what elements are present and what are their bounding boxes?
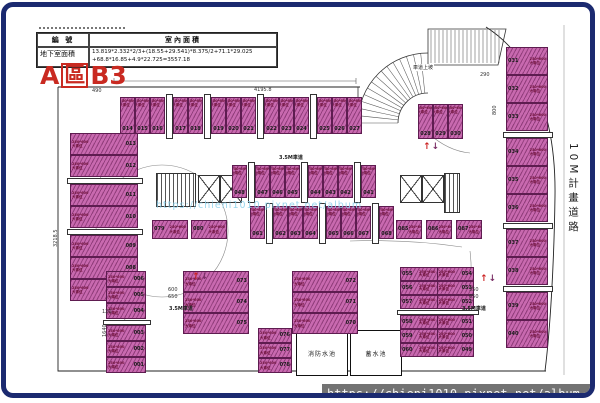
parking-stall: 037250*600大車位 (506, 229, 548, 257)
parking-stall: 250*600大車位026 (332, 97, 347, 134)
stall-size-note: 250*600大車位 (173, 99, 188, 107)
stall-number: 022 (266, 127, 276, 132)
dimension-label: 3218.5 (54, 230, 59, 248)
stall-number: 011 (126, 193, 136, 198)
stall-number: 049 (462, 348, 472, 353)
up-arrow-icon: ↑ (480, 275, 488, 284)
stall-number: 017 (175, 127, 185, 132)
stall-number: 031 (508, 59, 518, 64)
parking-stall: 033250*600大車位 (506, 103, 548, 131)
parking-stall: 059250*600大車位 (401, 330, 438, 342)
dimension-label: 800 (493, 105, 498, 115)
stall-size-note: 250*600大車位 (226, 99, 241, 107)
stall-size-note: 250*600大車位 (530, 267, 546, 275)
stall-number: 013 (126, 142, 136, 147)
stall-number: 018 (190, 127, 200, 132)
stall-size-note: 250*600大車位 (294, 277, 310, 285)
parking-stall: 058250*600大車位 (401, 316, 438, 328)
stall-size-note: 250*600大車位 (285, 167, 300, 175)
parking-stall: 250*600大車位025 (317, 97, 332, 134)
stall-size-note: 250*600大車位 (108, 361, 124, 369)
stall-size-note: 250*600大車位 (108, 291, 124, 299)
stall-size-note: 250*600大車位 (439, 271, 455, 278)
parking-stall: 250*600大車位022 (264, 97, 279, 134)
parking-stall: 250*600大車位028 (418, 104, 433, 139)
structural-column (354, 162, 361, 203)
stall-number: 063 (290, 232, 300, 237)
parking-stall: 250*600大車位017 (173, 97, 188, 134)
parking-stall: 250*600大車位047 (255, 165, 270, 198)
parking-stall: 086250*600大車位 (426, 220, 452, 239)
parking-stall: 250*600大車位045 (285, 165, 300, 198)
dimension-label: 550 (469, 288, 479, 293)
stall-size-note: 250*600大車位 (408, 225, 422, 233)
parking-stall: 250*600大車位015 (135, 97, 150, 134)
structural-column (67, 229, 143, 235)
parking-stall: 250*600大車位029 (433, 104, 448, 139)
stall-size-note: 250*600大車位 (135, 99, 150, 107)
parking-stall-pair: 060250*600大車位250*600大車位049 (400, 343, 474, 357)
stall-size-note: 250*600大車位 (439, 299, 455, 306)
parking-stall: 250*600大車位001 (106, 357, 146, 373)
stall-number: 004 (134, 309, 144, 314)
stall-number: 050 (462, 334, 472, 339)
stall-number: 026 (334, 127, 344, 132)
parking-stall: 250*600大車位005 (106, 287, 146, 303)
stall-number: 060 (402, 348, 412, 353)
stall-number: 076 (280, 333, 290, 338)
stall-size-note: 250*600大車位 (108, 345, 124, 353)
zone-title-boxed: 區 (61, 63, 88, 88)
stall-size-note: 250*600大車位 (170, 225, 186, 233)
structural-column (503, 223, 553, 229)
stall-size-note: 250*600大車位 (439, 319, 455, 326)
stall-number: 040 (508, 332, 518, 337)
parking-stall: 250*600大車位050 (438, 330, 474, 342)
dimension-label: 650 (469, 295, 479, 300)
stall-number: 043 (325, 191, 335, 196)
stair-core (444, 173, 460, 213)
structural-column (503, 286, 553, 292)
lane-arrows: ↑ ↓ (192, 273, 208, 282)
stall-size-note: 250*600大車位 (530, 148, 546, 156)
dimension-label: 650 (168, 295, 178, 300)
lane-arrows: ↑ ↓ (423, 143, 439, 152)
stall-size-note: 250*600大車位 (264, 99, 279, 107)
stall-number: 077 (280, 348, 290, 353)
stall-size-note: 250*600大車位 (108, 275, 124, 283)
stall-number: 056 (402, 286, 412, 291)
parking-stall: 085250*600大車位 (396, 220, 422, 239)
stall-size-note: 250*600大車位 (211, 99, 226, 107)
stall-number: 059 (402, 334, 412, 339)
stall-number: 062 (275, 232, 285, 237)
stall-number: 005 (134, 293, 144, 298)
stall-number: 054 (462, 272, 472, 277)
stall-number: 067 (358, 232, 368, 237)
dimension-label: 1640 (103, 324, 108, 337)
stall-number: 046 (272, 191, 282, 196)
floor-plan: 編 號 室內面積 地下室面積 13.819*2.332*2/3+(18.55+2… (6, 7, 590, 393)
stall-size-note: 250*600大車位 (530, 239, 546, 247)
stall-size-note: 250*600大車位 (419, 271, 435, 278)
parking-stall: 055250*600大車位 (401, 268, 438, 280)
stall-number: 019 (213, 127, 223, 132)
structural-column (257, 94, 264, 139)
elevator-shaft (400, 175, 422, 203)
watermark-text: https://chieni1010.pixnet.net/album (156, 200, 362, 211)
stall-size-note: 250*600大車位 (530, 176, 546, 184)
stall-number: 023 (281, 127, 291, 132)
stall-size-note: 250*600大車位 (439, 285, 455, 292)
stall-number: 048 (234, 191, 244, 196)
parking-stall: 250*600大車位014 (120, 97, 135, 134)
parking-stall: 250*600大車位049 (438, 344, 474, 356)
parking-stall: 250*600大車位076 (258, 328, 292, 343)
parking-stall: 250*600大車位043 (323, 165, 338, 198)
stall-size-note: 250*600大車位 (72, 162, 88, 170)
stall-number: 006 (134, 277, 144, 282)
stall-number: 003 (134, 331, 144, 336)
structural-column (397, 310, 479, 315)
stall-number: 086 (428, 227, 438, 232)
stall-number: 034 (508, 150, 518, 155)
machine-room-1: 消防水池 (296, 330, 348, 376)
parking-stall: 056250*600大車位 (401, 282, 438, 294)
table-header-area: 室內面積 (89, 33, 277, 47)
parking-stall: 079250*600大車位 (152, 220, 188, 239)
parking-stall: 060250*600大車位 (401, 344, 438, 356)
parking-stall: 250*600大車位023 (279, 97, 294, 134)
stall-number: 008 (126, 266, 136, 271)
stall-size-note: 250*600大車位 (347, 99, 362, 107)
stall-size-note: 250*600大車位 (72, 140, 88, 148)
stall-size-note: 250*600大車位 (188, 99, 203, 107)
stall-size-note: 250*600大車位 (419, 333, 435, 340)
parking-stall: 250*600大車位071 (292, 292, 358, 313)
stall-size-note: 250*600大車位 (438, 225, 452, 233)
stall-size-note: 250*600大車位 (120, 99, 135, 107)
stall-size-note: 250*600大車位 (418, 106, 433, 114)
stall-number: 042 (340, 191, 350, 196)
parking-stall: 031250*600大車位 (506, 47, 548, 75)
parking-stall: 034250*600大車位 (506, 138, 548, 166)
stall-number: 020 (228, 127, 238, 132)
stall-size-note: 250*600大車位 (260, 331, 276, 339)
parking-stall: 250*600大車位077 (258, 343, 292, 358)
zone-title-a: A (40, 63, 59, 88)
stall-number: 073 (237, 279, 247, 284)
parking-stall: 250*600大車位068 (379, 206, 394, 239)
stall-number: 030 (450, 132, 460, 137)
parking-stall-pair: 056250*600大車位250*600大車位053 (400, 281, 474, 295)
stall-size-note: 250*600大車位 (72, 213, 88, 221)
stall-size-note: 250*600大車位 (468, 225, 482, 233)
parking-stall-pair: 055250*600大車位250*600大車位054 (400, 267, 474, 281)
stall-number: 027 (349, 127, 359, 132)
parking-stall: 250*600大車位075 (183, 313, 249, 334)
stall-number: 057 (402, 300, 412, 305)
dimension-label: 120 (102, 310, 112, 315)
parking-stall: 250*600大車位027 (347, 97, 362, 134)
aisle-label: 3.5M車道 (169, 305, 193, 312)
stall-number: 079 (154, 227, 164, 232)
machine-room-1-label: 消防水池 (308, 349, 336, 358)
stall-size-note: 250*600大車位 (260, 346, 276, 354)
structural-column (503, 132, 553, 138)
parking-stall: 250*600大車位051 (438, 316, 474, 328)
dimension-label: 600 (168, 288, 178, 293)
parking-stall: 250*600大車位048 (232, 165, 247, 198)
stall-number: 039 (508, 304, 518, 309)
table-header-id: 編 號 (37, 33, 89, 47)
stall-size-note: 250*600大車位 (294, 319, 310, 327)
stall-number: 064 (305, 232, 315, 237)
parking-stall: 250*600大車位004 (106, 303, 146, 319)
structural-column (310, 94, 317, 139)
down-arrow-icon: ↓ (432, 143, 440, 152)
stall-size-note: 250*600大車位 (241, 99, 256, 107)
stall-size-note: 250*600大車位 (439, 347, 455, 354)
screenshot: 編 號 室內面積 地下室面積 13.819*2.332*2/3+(18.55+2… (0, 0, 600, 403)
parking-stall: 039250*600大車位 (506, 292, 548, 320)
parking-stall: 032250*600大車位 (506, 75, 548, 103)
parking-stall: 250*600大車位072 (292, 271, 358, 292)
structural-column (301, 162, 308, 203)
stall-size-note: 250*600大車位 (530, 204, 546, 212)
stall-size-note: 250*600大車位 (270, 167, 285, 175)
tick-marks (39, 27, 125, 29)
stall-number: 041 (363, 191, 373, 196)
stall-size-note: 250*600大車位 (255, 167, 270, 175)
stall-size-note: 250*600大車位 (72, 264, 88, 272)
stall-size-note: 250*600大車位 (419, 299, 435, 306)
stall-number: 038 (508, 269, 518, 274)
stall-size-note: 250*600大車位 (433, 106, 448, 114)
stall-number: 009 (126, 244, 136, 249)
stall-number: 044 (310, 191, 320, 196)
structural-column (67, 178, 143, 184)
stall-size-note: 250*600大車位 (419, 347, 435, 354)
parking-stall: 250*600大車位019 (211, 97, 226, 134)
stall-size-note: 250*600大車位 (530, 330, 546, 338)
stall-number: 047 (257, 191, 267, 196)
stall-number: 071 (346, 300, 356, 305)
stall-size-note: 250*600大車位 (419, 285, 435, 292)
watermark-bar: https://chieni1010.pixnet.net/album (322, 384, 595, 398)
parking-stall: 250*600大車位010 (70, 206, 138, 228)
dimension-label: 290 (480, 73, 490, 78)
stall-number: 025 (319, 127, 329, 132)
stall-size-note: 250*600大車位 (232, 167, 247, 175)
parking-stall: 057250*600大車位 (401, 296, 438, 308)
parking-stall: 250*600大車位011 (70, 184, 138, 206)
zone-title-b3: B3 (90, 63, 126, 88)
ramp-label: 車道上坡 (412, 64, 434, 71)
stall-number: 065 (328, 232, 338, 237)
stall-number: 002 (134, 347, 144, 352)
structural-column (372, 203, 379, 244)
stall-size-note: 250*600大車位 (209, 225, 225, 233)
parking-stall: 250*600大車位078 (258, 358, 292, 373)
stall-number: 058 (402, 320, 412, 325)
stall-number: 074 (237, 300, 247, 305)
stall-size-note: 250*600大車位 (279, 99, 294, 107)
parking-stall: 250*600大車位070 (292, 313, 358, 334)
up-arrow-icon: ↑ (423, 143, 431, 152)
down-arrow-icon: ↓ (489, 275, 497, 284)
stall-number: 032 (508, 87, 518, 92)
parking-stall: 250*600大車位046 (270, 165, 285, 198)
stall-number: 051 (462, 320, 472, 325)
stall-number: 072 (346, 279, 356, 284)
stall-size-note: 250*600大車位 (379, 208, 394, 216)
stall-number: 045 (287, 191, 297, 196)
stall-number: 075 (237, 321, 247, 326)
stall-size-note: 250*600大車位 (185, 319, 201, 327)
stall-number: 052 (462, 300, 472, 305)
stall-number: 024 (296, 127, 306, 132)
stall-number: 061 (252, 232, 262, 237)
stall-number: 070 (346, 321, 356, 326)
aisle-label: 3.5M車道 (279, 154, 303, 161)
stall-number: 037 (508, 241, 518, 246)
stall-size-note: 250*600大車位 (323, 167, 338, 175)
parking-stall: 035250*600大車位 (506, 166, 548, 194)
photo-frame: 編 號 室內面積 地下室面積 13.819*2.332*2/3+(18.55+2… (1, 2, 595, 398)
stall-size-note: 250*600大車位 (419, 319, 435, 326)
parking-stall: 250*600大車位021 (241, 97, 256, 134)
stall-number: 021 (243, 127, 253, 132)
parking-stall: 250*600大車位024 (294, 97, 309, 134)
formula-line-1: 13.819*2.332*2/3+(18.55+29.541)*8.375/2+… (92, 49, 274, 57)
parking-stall: 250*600大車位002 (106, 341, 146, 357)
parking-stall: 250*600大車位041 (361, 165, 376, 198)
parking-stall: 250*600大車位030 (448, 104, 463, 139)
stall-number: 055 (402, 272, 412, 277)
stall-size-note: 250*600大車位 (317, 99, 332, 107)
stall-number: 035 (508, 178, 518, 183)
stall-size-note: 250*600大車位 (361, 167, 376, 175)
machine-room-2: 蓄水池 (350, 330, 402, 376)
stall-size-note: 250*600大車位 (150, 99, 165, 107)
stall-number: 078 (280, 363, 290, 368)
stall-number: 085 (398, 227, 408, 232)
stall-size-note: 250*600大車位 (294, 99, 309, 107)
parking-stall: 087250*600大車位 (456, 220, 482, 239)
stall-number: 068 (381, 232, 391, 237)
stall-size-note: 250*600大車位 (338, 167, 353, 175)
parking-stall: 250*600大車位009 (70, 235, 138, 257)
stall-number: 015 (137, 127, 147, 132)
stall-number: 029 (435, 132, 445, 137)
stall-size-note: 250*600大車位 (439, 333, 455, 340)
parking-stall: 080250*600大車位 (191, 220, 227, 239)
structural-column (204, 94, 211, 139)
stall-size-note: 250*600大車位 (308, 167, 323, 175)
road-label: 10M計畫道路 (566, 143, 581, 235)
parking-stall: 250*600大車位053 (438, 282, 474, 294)
lane-arrows: ↑ ↓ (480, 275, 496, 284)
stall-number: 036 (508, 206, 518, 211)
stall-number: 028 (420, 132, 430, 137)
stall-size-note: 250*600大車位 (530, 113, 546, 121)
zone-title: A 區 B3 (40, 63, 127, 88)
stall-size-note: 250*600大車位 (530, 85, 546, 93)
parking-stall: 038250*600大車位 (506, 257, 548, 285)
parking-stall: 250*600大車位042 (338, 165, 353, 198)
machine-room-2-label: 蓄水池 (365, 349, 386, 358)
stall-size-note: 250*600大車位 (448, 106, 463, 114)
up-arrow-icon: ↑ (192, 273, 200, 282)
structural-column (248, 162, 255, 203)
parking-stall: 250*600大車位044 (308, 165, 323, 198)
parking-stall: 250*600大車位054 (438, 268, 474, 280)
structural-column (166, 94, 173, 139)
dimension-label: 4195.8 (254, 88, 272, 93)
structural-column (103, 320, 151, 325)
parking-stall: 250*600大車位012 (70, 155, 138, 177)
stall-size-note: 250*600大車位 (332, 99, 347, 107)
parking-stall: 250*600大車位013 (70, 133, 138, 155)
stall-number: 087 (458, 227, 468, 232)
parking-stall-pair: 058250*600大車位250*600大車位051 (400, 315, 474, 329)
stall-number: 012 (126, 164, 136, 169)
stall-number: 010 (126, 215, 136, 220)
stall-number: 033 (508, 115, 518, 120)
parking-stall: 040250*600大車位 (506, 320, 548, 348)
parking-stall: 250*600大車位006 (106, 271, 146, 287)
stall-number: 014 (122, 127, 132, 132)
parking-stall: 250*600大車位018 (188, 97, 203, 134)
stall-size-note: 250*600大車位 (530, 302, 546, 310)
stall-number: 001 (134, 363, 144, 368)
stall-number: 016 (152, 127, 162, 132)
stall-size-note: 250*600大車位 (72, 191, 88, 199)
elevator-shaft (422, 175, 444, 203)
stall-size-note: 250*600大車位 (530, 57, 546, 65)
down-arrow-icon: ↓ (201, 273, 209, 282)
parking-stall: 250*600大車位020 (226, 97, 241, 134)
stall-number: 066 (343, 232, 353, 237)
parking-stall: 250*600大車位003 (106, 325, 146, 341)
stall-size-note: 250*600大車位 (72, 242, 88, 250)
stall-size-note: 250*600大車位 (72, 286, 88, 294)
stall-size-note: 250*600大車位 (294, 298, 310, 306)
stall-number: 080 (193, 227, 203, 232)
stall-size-note: 250*600大車位 (260, 361, 276, 369)
stall-size-note: 250*600大車位 (108, 329, 124, 337)
parking-stall: 250*600大車位016 (150, 97, 165, 134)
parking-stall: 036250*600大車位 (506, 194, 548, 222)
elevator-shaft (198, 175, 220, 203)
parking-stall-pair: 059250*600大車位250*600大車位050 (400, 329, 474, 343)
